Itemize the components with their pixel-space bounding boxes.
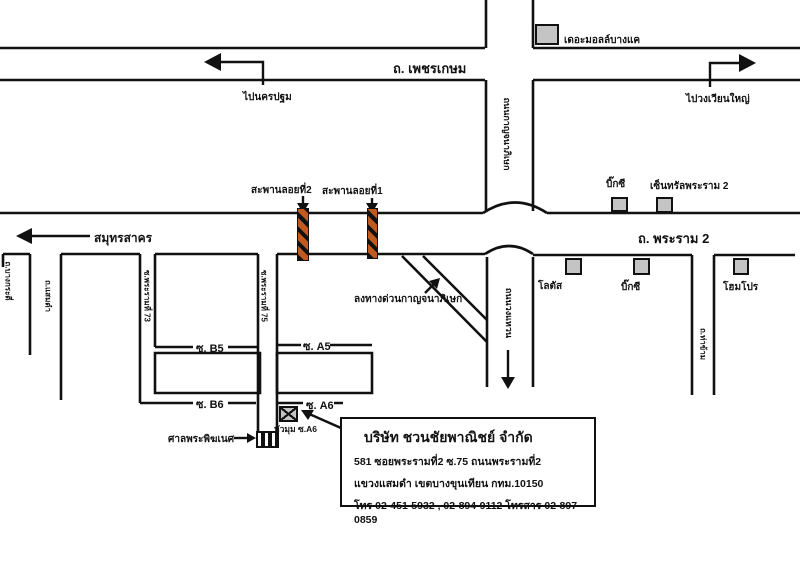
label-soi-a5: ซ. A5 — [303, 337, 331, 355]
direction-label-wongwianyai: ไปวงเวียนใหญ่ — [686, 92, 750, 107]
company-info-box: บริษัท ชวนชัยพาณิชย์ จำกัด 581 ซอยพระราม… — [340, 417, 596, 507]
road-label-bangkradi: ถ.บางกระดี่ — [2, 261, 15, 300]
road-label-samaedam: ถ.แสมดำ — [42, 280, 55, 312]
building-bigc-south — [633, 258, 650, 275]
label-homepro: โฮมโปร — [723, 280, 758, 295]
building-homepro — [733, 258, 749, 275]
direction-label-samutsakhon: สมุทรสาคร — [94, 229, 152, 248]
building-lotus — [565, 258, 582, 275]
label-lotus: โลตัส — [538, 279, 562, 294]
company-phone: โทร 02-451-5932 , 02-894-9112 โทรสาร 02-… — [354, 497, 586, 526]
road-label-thakham: ถ.ท่าข้าม — [697, 328, 710, 360]
label-central-rama2: เซ็นทรัลพระราม 2 — [650, 179, 728, 194]
company-name: บริษัท ชวนชัยพาณิชย์ จำกัด — [364, 427, 586, 449]
label-the-mall-bangkae: เดอะมอลล์บางแค — [564, 33, 640, 48]
label-corner-a6: หัวมุม ซ.A6 — [274, 422, 317, 436]
building-central-rama2 — [656, 197, 673, 213]
label-bigc-south: บิ๊กซี — [621, 280, 640, 295]
label-soi-b6: ซ. B6 — [196, 395, 224, 413]
label-bridge-1: สะพานลอยที่1 — [322, 184, 383, 199]
pedestrian-bridge-2 — [297, 208, 309, 261]
company-location-marker — [279, 406, 298, 422]
label-soi-a6: ซ. A6 — [306, 396, 334, 414]
road-label-rama2-soi75: ซ.พระรามที่ 75 — [258, 270, 271, 322]
label-bigc-north: บิ๊กซี — [606, 177, 625, 192]
road-label-phetkasem: ถ. เพชรเกษม — [393, 58, 466, 79]
company-address-line1: 581 ซอยพระรามที่2 ซ.75 ถนนพระรามที่2 — [354, 453, 586, 470]
label-bridge-2: สะพานลอยที่2 — [251, 183, 312, 198]
road-label-kanchanaphisek: ถนนกาญจนาภิเษก — [500, 98, 514, 171]
label-soi-b5: ซ. B5 — [196, 339, 224, 357]
road-label-rama2: ถ. พระราม 2 — [638, 228, 709, 249]
map-canvas: ถ. เพชรเกษม ถ. พระราม 2 ไปนครปฐม ไปวงเวี… — [0, 0, 800, 574]
building-bigc-north — [611, 197, 628, 212]
building-the-mall-bangkae — [535, 24, 559, 45]
label-expressway-exit: ลงทางด่วนกาญจนาภิเษก — [354, 292, 462, 307]
company-address-line2: แขวงแสมดำ เขตบางขุนเทียน กทม.10150 — [354, 475, 586, 492]
label-shrine: ศาลพระพิฆเนศ — [168, 432, 234, 447]
pedestrian-bridge-1 — [367, 208, 378, 259]
direction-label-nakhonpathom: ไปนครปฐม — [243, 90, 292, 105]
road-label-ring-lower: ถนนวงแหวน — [502, 288, 516, 338]
road-label-rama2-soi73: ซ.พระรามที่ 73 — [141, 270, 154, 322]
